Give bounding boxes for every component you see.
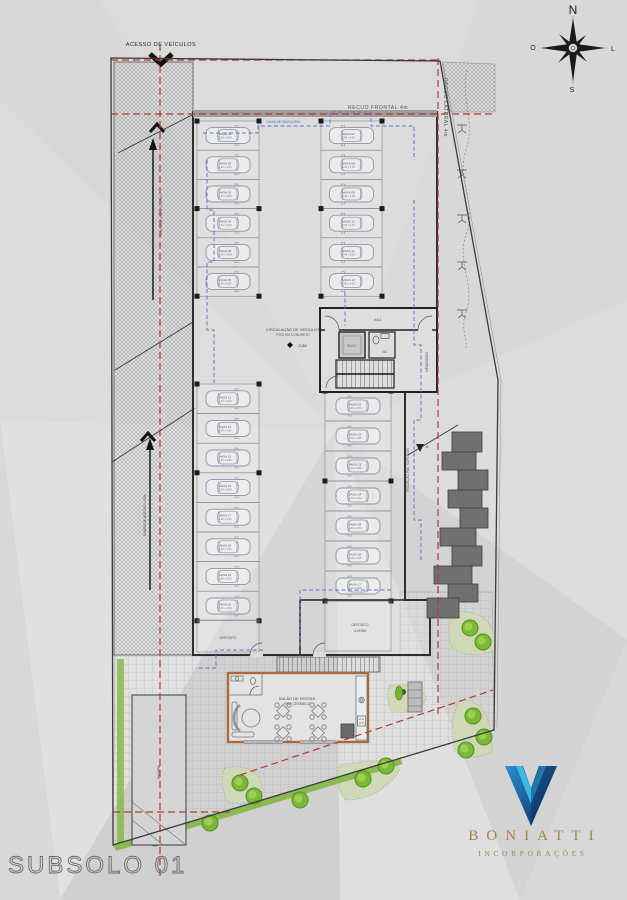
svg-text:VAGA 09: VAGA 09 — [342, 191, 355, 195]
svg-text:2,40 x 4,50: 2,40 x 4,50 — [349, 406, 362, 410]
parking-stall: VAGA 082,40 x 4,50 — [321, 150, 382, 179]
svg-text:2,40 x 4,50: 2,40 x 4,50 — [219, 547, 232, 551]
svg-text:PISO EM CONCRETO: PISO EM CONCRETO — [276, 333, 310, 337]
column-pillar — [257, 470, 262, 475]
svg-text:2,40 x 4,50: 2,40 x 4,50 — [349, 496, 362, 500]
svg-text:2,40 x 4,50: 2,40 x 4,50 — [219, 458, 232, 462]
svg-text:2,40 x 4,50: 2,40 x 4,50 — [219, 488, 232, 492]
column-pillar — [257, 206, 262, 211]
svg-text:VAGA 15: VAGA 15 — [219, 455, 232, 459]
svg-text:2,40 x 4,50: 2,40 x 4,50 — [219, 517, 232, 521]
access-label: ACESSO DE VEÍCULOS — [126, 41, 196, 48]
column-pillar — [319, 206, 324, 211]
column-pillar — [195, 206, 200, 211]
parking-stall: VAGA 162,40 x 4,50 — [197, 473, 259, 503]
svg-text:VAGA 22: VAGA 22 — [349, 433, 362, 437]
compass-north: N — [569, 3, 578, 17]
brand-name: BONIATTI — [468, 828, 601, 844]
svg-text:A: A — [426, 444, 429, 449]
compass-east: L — [611, 46, 615, 53]
column-pillar — [257, 119, 262, 124]
svg-text:VAGA 14: VAGA 14 — [219, 425, 232, 429]
compass-south: S — [570, 87, 575, 94]
parking-stall: VAGA 012,40 x 4,50 — [197, 121, 259, 150]
svg-text:2,40 x 4,50: 2,40 x 4,50 — [219, 136, 232, 140]
parking-stall: VAGA 222,40 x 4,50 — [325, 421, 391, 451]
svg-text:VAGA 25: VAGA 25 — [349, 523, 362, 527]
svg-text:VAGA 05: VAGA 05 — [219, 249, 232, 253]
kitchen-counter — [356, 676, 367, 740]
utility-box-label: CAIXA DE PASSAGEM — [266, 120, 300, 124]
column-pillar — [195, 470, 200, 475]
column-pillar — [380, 119, 385, 124]
front-setback-label: RECUO FRONTAL 4m — [348, 105, 408, 111]
svg-text:CIRCULAÇÃO DE VEÍCULOS: CIRCULAÇÃO DE VEÍCULOS — [266, 327, 321, 332]
compass-rose: N S L O — [530, 3, 615, 94]
column-pillar — [380, 294, 385, 299]
hall-label: HALL — [374, 318, 382, 322]
svg-text:2,40 x 4,50: 2,40 x 4,50 — [219, 399, 232, 403]
svg-text:VAGA 19: VAGA 19 — [219, 573, 232, 577]
parking-stall: VAGA 192,40 x 4,50 — [197, 562, 259, 592]
parking-stall: VAGA 062,40 x 4,50 — [197, 267, 259, 296]
parking-stall: VAGA 232,40 x 4,50 — [325, 451, 391, 481]
svg-text:PISO CERÂMICO: PISO CERÂMICO — [284, 702, 311, 706]
elevator-label: ELEV. — [347, 344, 356, 348]
parking-stall: VAGA 102,40 x 4,50 — [321, 209, 382, 238]
svg-text:2,40 x 4,50: 2,40 x 4,50 — [342, 136, 355, 140]
svg-text:VAGA 24: VAGA 24 — [349, 493, 362, 497]
svg-text:VAGA 03: VAGA 03 — [219, 191, 232, 195]
sheet-title: SUBSOLO 01 — [8, 852, 187, 879]
parking-stall: VAGA 182,40 x 4,50 — [197, 532, 259, 562]
trash-room-label-1: DEPÓSITO — [352, 622, 369, 627]
svg-text:2,40 x 4,50: 2,40 x 4,50 — [342, 223, 355, 227]
column-pillar — [257, 294, 262, 299]
svg-text:VAGA 27: VAGA 27 — [349, 583, 362, 587]
column-pillar — [389, 479, 394, 484]
parking-stall: VAGA 072,40 x 4,50 — [321, 121, 382, 150]
svg-text:2,40 x 4,50: 2,40 x 4,50 — [349, 586, 362, 590]
parking-stall: VAGA 052,40 x 4,50 — [197, 238, 259, 267]
svg-text:2,40 x 4,50: 2,40 x 4,50 — [219, 282, 232, 286]
parking-stall: VAGA 122,40 x 4,50 — [321, 267, 382, 296]
floor-plan-sheet: RAMPA DE ACESSO i=25% RAMPA DE ACESSO i=… — [0, 0, 627, 900]
column-pillar — [380, 206, 385, 211]
bbq-counter — [408, 682, 422, 712]
svg-text:VAGA 07: VAGA 07 — [342, 132, 355, 136]
svg-text:2,40 x 4,50: 2,40 x 4,50 — [342, 252, 355, 256]
trash-room-label-2: LIXEIRA — [354, 629, 367, 633]
wc-label: WC — [382, 350, 388, 354]
parking-stall: VAGA 242,40 x 4,50 — [325, 481, 391, 511]
svg-text:2,40 x 4,50: 2,40 x 4,50 — [219, 252, 232, 256]
meters-label: MEDIDORES — [425, 351, 429, 372]
column-pillar — [195, 119, 200, 124]
svg-text:VAGA 16: VAGA 16 — [219, 484, 232, 488]
parking-stall: VAGA 042,40 x 4,50 — [197, 209, 259, 238]
svg-text:2,40 x 4,50: 2,40 x 4,50 — [219, 428, 232, 432]
parking-stall: VAGA 262,40 x 4,50 — [325, 541, 391, 571]
column-pillar — [195, 382, 200, 387]
compass-west: O — [530, 45, 536, 52]
column-pillar — [195, 294, 200, 299]
pergola — [277, 657, 380, 672]
svg-text:VAGA 08: VAGA 08 — [342, 161, 355, 165]
patio-ramp: RAMPA — [132, 695, 186, 845]
svg-text:VAGA 06: VAGA 06 — [219, 278, 232, 282]
svg-text:VAGA 23: VAGA 23 — [349, 463, 362, 467]
column-pillar — [323, 479, 328, 484]
parking-stall: VAGA 142,40 x 4,50 — [197, 414, 259, 444]
vehicle-ramp: RAMPA DE ACESSO i=25% RAMPA DE ACESSO i=… — [112, 62, 195, 655]
appliance — [341, 724, 354, 738]
column-pillar — [257, 382, 262, 387]
column-pillar — [319, 119, 324, 124]
parking-stall: VAGA 092,40 x 4,50 — [321, 179, 382, 208]
svg-text:2,40 x 4,50: 2,40 x 4,50 — [349, 526, 362, 530]
parking-stall: VAGA 022,40 x 4,50 — [197, 150, 259, 179]
svg-text:VAGA 21: VAGA 21 — [349, 403, 362, 407]
svg-text:2,40 x 4,50: 2,40 x 4,50 — [342, 282, 355, 286]
party-room-label: SALÃO DE FESTAS — [279, 696, 316, 701]
svg-text:2,40 x 4,50: 2,40 x 4,50 — [219, 606, 232, 610]
svg-text:VAGA 20: VAGA 20 — [219, 603, 232, 607]
storage-label: DEPÓSITO — [220, 635, 237, 640]
ramp-label-2: RAMPA DE ACESSO i=25% — [143, 494, 147, 536]
svg-text:2,40 x 4,50: 2,40 x 4,50 — [349, 436, 362, 440]
svg-text:2,40 x 4,50: 2,40 x 4,50 — [219, 223, 232, 227]
parking-stall: VAGA 132,40 x 4,50 — [197, 384, 259, 414]
site-plan-drawing: RAMPA DE ACESSO i=25% RAMPA DE ACESSO i=… — [0, 0, 627, 900]
svg-text:VAGA 18: VAGA 18 — [219, 543, 232, 547]
svg-text:VAGA 26: VAGA 26 — [349, 553, 362, 557]
parking-stall: VAGA 212,40 x 4,50 — [325, 391, 391, 421]
svg-text:2,40 x 4,50: 2,40 x 4,50 — [349, 556, 362, 560]
parking-stall: VAGA 272,40 x 4,50 — [325, 571, 391, 601]
svg-text:VAGA 12: VAGA 12 — [342, 278, 355, 282]
svg-text:2,40 x 4,50: 2,40 x 4,50 — [219, 576, 232, 580]
stair-core: HALL ELEV. WC MEDIDORES — [320, 308, 437, 392]
parking-stall: VAGA 032,40 x 4,50 — [197, 179, 259, 208]
svg-text:VAGA 11: VAGA 11 — [342, 249, 355, 253]
column-pillar — [319, 294, 324, 299]
parking-stall: VAGA 252,40 x 4,50 — [325, 511, 391, 541]
svg-text:2,40 x 4,50: 2,40 x 4,50 — [342, 165, 355, 169]
level-value: -2,88 — [297, 343, 307, 348]
svg-text:VAGA 04: VAGA 04 — [219, 220, 232, 224]
parking-stall: VAGA 112,40 x 4,50 — [321, 238, 382, 267]
parking-stall: VAGA 152,40 x 4,50 — [197, 443, 259, 473]
brand-subtitle: INCORPORAÇÕES — [478, 848, 587, 858]
svg-text:VAGA 13: VAGA 13 — [219, 395, 232, 399]
svg-text:2,40 x 4,50: 2,40 x 4,50 — [342, 194, 355, 198]
svg-text:2,40 x 4,50: 2,40 x 4,50 — [219, 194, 232, 198]
svg-text:VAGA 02: VAGA 02 — [219, 161, 232, 165]
svg-text:2,40 x 4,50: 2,40 x 4,50 — [349, 466, 362, 470]
parking-stall: VAGA 172,40 x 4,50 — [197, 502, 259, 532]
svg-text:VAGA 10: VAGA 10 — [342, 220, 355, 224]
svg-text:2,40 x 4,50: 2,40 x 4,50 — [219, 165, 232, 169]
svg-text:VAGA 17: VAGA 17 — [219, 514, 232, 518]
parking-stall: VAGA 202,40 x 4,50 — [197, 591, 259, 621]
